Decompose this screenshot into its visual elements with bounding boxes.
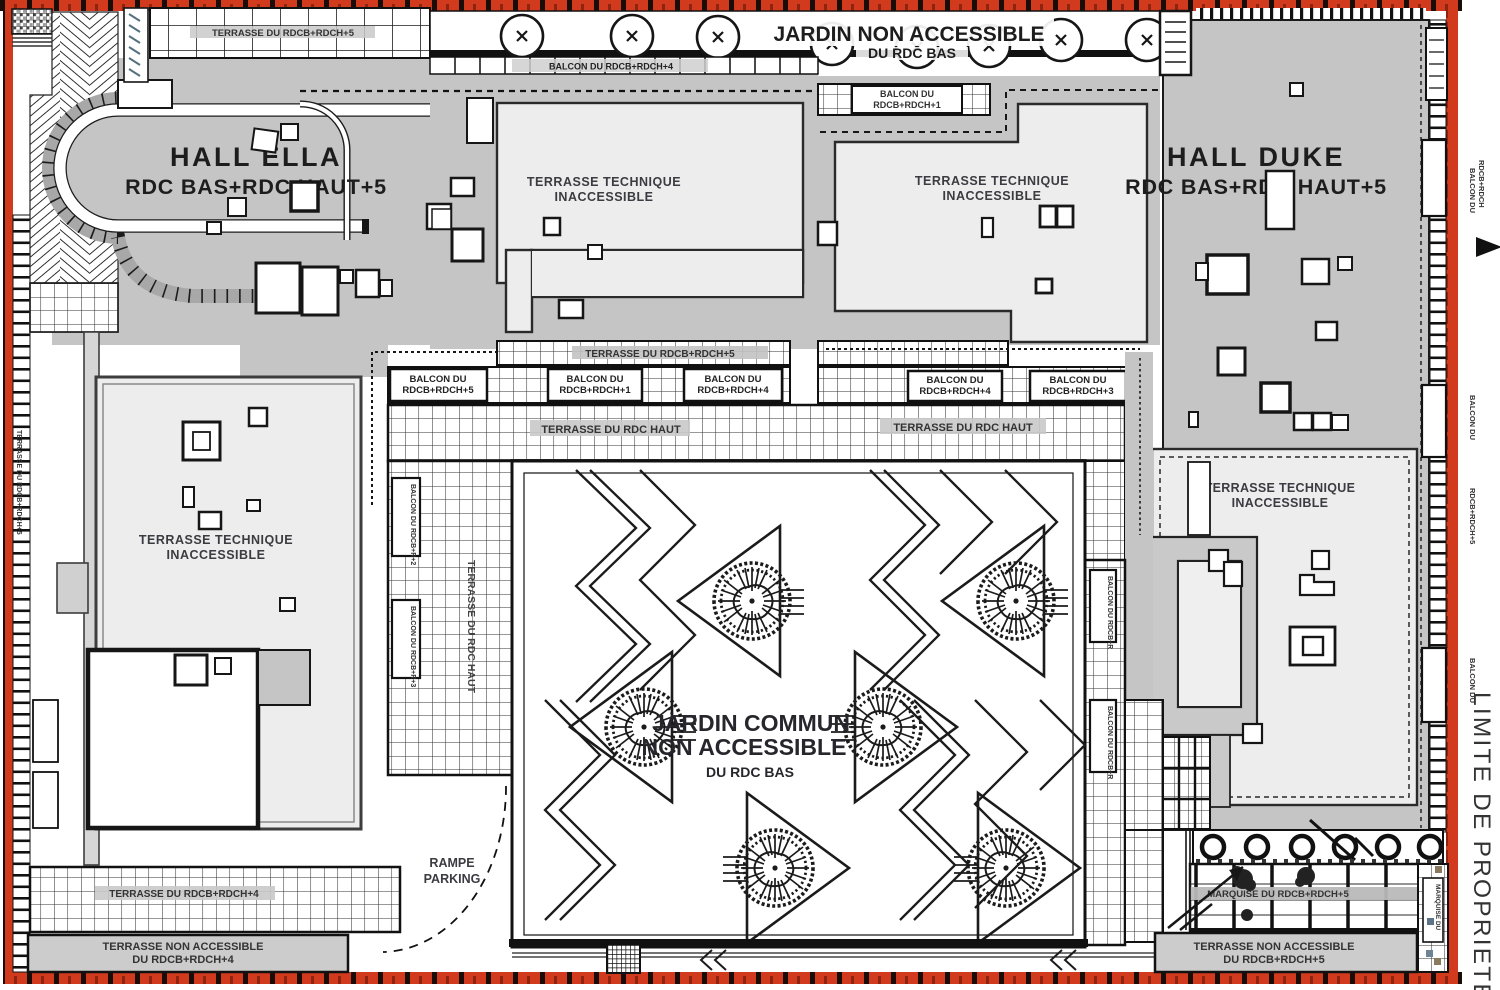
svg-text:TERRASSE DU RDCB+RDCH+5: TERRASSE DU RDCB+RDCH+5 (585, 349, 735, 360)
svg-text:BALCON DU RDCB+R: BALCON DU RDCB+R (1106, 576, 1113, 649)
svg-text:RAMPE: RAMPE (429, 856, 474, 870)
svg-text:HALL DUKE: HALL DUKE (1167, 142, 1345, 172)
svg-text:DU RDCB+RDCH+4: DU RDCB+RDCH+4 (132, 954, 234, 966)
svg-text:TERRASSE DU RDCB+RDCH+5: TERRASSE DU RDCB+RDCH+5 (212, 28, 355, 39)
svg-text:RDCB+RDCH+4: RDCB+RDCH+4 (919, 386, 991, 397)
svg-text:JARDIN NON ACCESSIBLE: JARDIN NON ACCESSIBLE (773, 23, 1044, 46)
svg-text:RDC BAS+RDC HAUT+5: RDC BAS+RDC HAUT+5 (1125, 175, 1387, 199)
svg-text:TERRASSE DU RDC HAUT: TERRASSE DU RDC HAUT (541, 424, 681, 436)
svg-text:BALCON DU: BALCON DU (927, 375, 984, 386)
svg-text:TERRASSE DU RDC HAUT: TERRASSE DU RDC HAUT (893, 422, 1033, 434)
svg-text:TERRASSE NON ACCESSIBLE: TERRASSE NON ACCESSIBLE (103, 941, 264, 953)
svg-text:TERRASSE TECHNIQUE: TERRASSE TECHNIQUE (1205, 481, 1356, 495)
svg-text:DU RDC BAS: DU RDC BAS (868, 45, 956, 61)
svg-text:BALCON DU RDCB+R+2: BALCON DU RDCB+R+2 (409, 484, 416, 565)
svg-text:INACCESSIBLE: INACCESSIBLE (1232, 496, 1329, 510)
svg-text:BALCON DU RDCB+RDCH+4: BALCON DU RDCB+RDCH+4 (549, 62, 673, 72)
svg-text:LIMITE DE PROPRIETE: LIMITE DE PROPRIETE (1468, 692, 1495, 990)
svg-text:BALCON DU RDCB+R: BALCON DU RDCB+R (1106, 706, 1113, 779)
svg-text:RDCB+RDCH+5: RDCB+RDCH+5 (1468, 488, 1477, 544)
svg-text:MARQUISE DU: MARQUISE DU (1434, 884, 1441, 931)
svg-text:DU RDCB+RDCH+5: DU RDCB+RDCH+5 (1223, 954, 1324, 966)
svg-text:RDCB+RDCH+3: RDCB+RDCH+3 (1042, 386, 1113, 397)
svg-text:RDCB+RDCH+5: RDCB+RDCH+5 (402, 385, 474, 396)
svg-text:BALCON DU: BALCON DU (410, 374, 467, 385)
svg-text:BALCON DU: BALCON DU (1468, 168, 1477, 213)
svg-text:TERRASSE TECHNIQUE: TERRASSE TECHNIQUE (915, 174, 1069, 188)
svg-text:BALCON DU: BALCON DU (880, 89, 934, 99)
svg-text:RDCB+RDCH+4: RDCB+RDCH+4 (697, 385, 769, 396)
svg-text:TERRASSE DU RDCB+RDCH+4: TERRASSE DU RDCB+RDCH+4 (109, 889, 259, 900)
svg-text:INACCESSIBLE: INACCESSIBLE (942, 189, 1041, 203)
svg-text:TERRASSE TECHNIQUE: TERRASSE TECHNIQUE (527, 175, 681, 189)
svg-text:RDCB+RDCH: RDCB+RDCH (1477, 160, 1486, 208)
svg-text:INACCESSIBLE: INACCESSIBLE (166, 548, 265, 562)
svg-text:TERRASSE DU RDC HAUT: TERRASSE DU RDC HAUT (465, 560, 477, 694)
svg-text:TERRASSE DU RDCB+RDCH+5: TERRASSE DU RDCB+RDCH+5 (15, 430, 22, 535)
svg-text:BALCON DU: BALCON DU (567, 374, 624, 385)
svg-text:RDCB+RDCH+1: RDCB+RDCH+1 (873, 100, 941, 110)
svg-text:TERRASSE NON ACCESSIBLE: TERRASSE NON ACCESSIBLE (1194, 941, 1355, 953)
svg-text:RDC BAS+RDC HAUT+5: RDC BAS+RDC HAUT+5 (125, 175, 387, 199)
svg-text:BALCON DU: BALCON DU (705, 374, 762, 385)
svg-text:NON ACCESSIBLE: NON ACCESSIBLE (642, 734, 847, 760)
svg-text:MARQUISE DU RDCB+RDCH+5: MARQUISE DU RDCB+RDCH+5 (1207, 889, 1349, 900)
svg-text:RDCB+RDCH+1: RDCB+RDCH+1 (559, 385, 631, 396)
svg-text:DU RDC BAS: DU RDC BAS (706, 764, 794, 780)
svg-text:BALCON DU: BALCON DU (1468, 395, 1477, 440)
svg-text:BALCON DU RDCB+R+3: BALCON DU RDCB+R+3 (409, 606, 416, 687)
svg-text:BALCON DU: BALCON DU (1050, 375, 1107, 386)
svg-text:PARKING: PARKING (424, 872, 481, 886)
svg-text:TERRASSE TECHNIQUE: TERRASSE TECHNIQUE (139, 533, 293, 547)
svg-text:INACCESSIBLE: INACCESSIBLE (554, 190, 653, 204)
svg-text:JARDIN COMMUN: JARDIN COMMUN (652, 710, 850, 736)
